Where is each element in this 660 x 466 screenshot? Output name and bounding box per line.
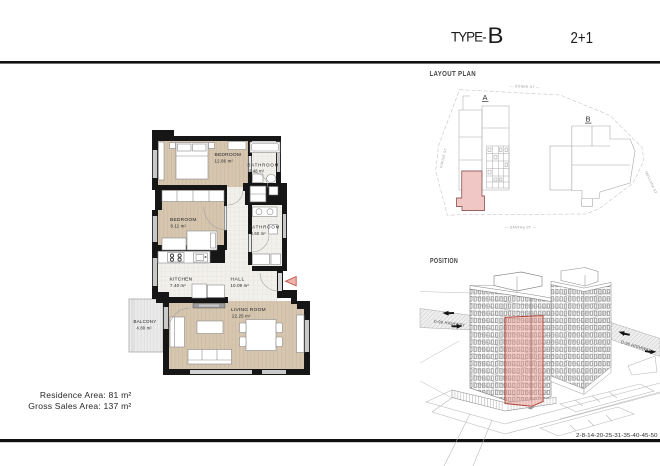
svg-text:KITCHEN: KITCHEN [170,276,193,282]
svg-text:LAYOUT PLAN: LAYOUT PLAN [430,69,477,78]
svg-text:8.11 m²: 8.11 m² [171,223,187,228]
svg-text:7.40 m²: 7.40 m² [170,283,186,288]
svg-text:A: A [483,93,488,102]
svg-text:3.60 m²: 3.60 m² [251,231,267,236]
svg-text:12.86 m²: 12.86 m² [215,159,234,164]
svg-text:BALCONY: BALCONY [134,319,157,324]
svg-text:2-8-14-20-25-31-35-40-45-50: 2-8-14-20-25-31-35-40-45-50 [576,433,658,439]
svg-text:3.48 m²: 3.48 m² [249,169,265,174]
svg-text:FIRUZE ST: FIRUZE ST [439,148,448,169]
svg-text:HALL: HALL [231,276,245,282]
svg-text:POSITION: POSITION [430,256,458,265]
svg-text:B: B [488,23,504,48]
svg-text:22.25 m²: 22.25 m² [232,313,251,318]
svg-text:— SANTAŞ ST —: — SANTAŞ ST — [505,226,536,230]
svg-text:BATHROOM: BATHROOM [248,163,279,168]
svg-text:2+1: 2+1 [571,30,594,47]
svg-text:10.09 m²: 10.09 m² [231,283,250,288]
svg-text:Gross Sales Area: 137 m²: Gross Sales Area: 137 m² [28,401,131,411]
svg-text:— DÖNER ST —: — DÖNER ST — [510,84,540,90]
svg-text:B: B [586,115,591,124]
svg-text:BEDROOM: BEDROOM [170,217,197,223]
svg-text:4.80 m²: 4.80 m² [137,325,153,330]
svg-text:BATHROOM: BATHROOM [249,225,280,230]
svg-text:BEDROOM: BEDROOM [215,152,242,158]
svg-text:Residence Area: 81 m²: Residence Area: 81 m² [40,390,132,400]
svg-text:LIVING ROOM: LIVING ROOM [231,307,266,313]
svg-text:MEVLANA ST: MEVLANA ST [644,171,658,195]
svg-text:TYPE-: TYPE- [451,30,487,45]
